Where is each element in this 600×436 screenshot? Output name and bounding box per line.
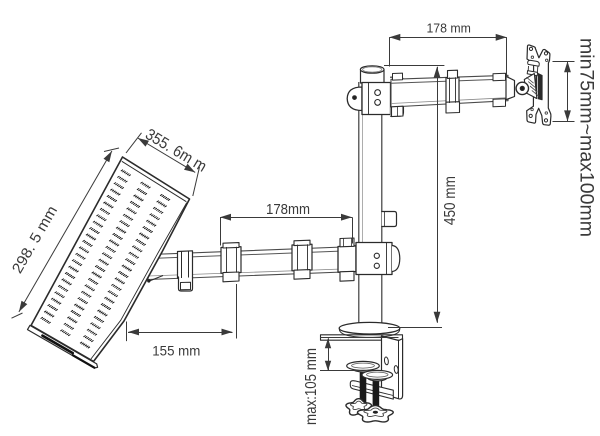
- svg-text:155 mm: 155 mm: [152, 343, 200, 359]
- svg-text:178mm: 178mm: [266, 201, 310, 218]
- svg-text:178 mm: 178 mm: [426, 21, 471, 36]
- svg-text:min75mm~max100mm: min75mm~max100mm: [576, 38, 597, 237]
- svg-text:450 mm: 450 mm: [442, 176, 459, 225]
- svg-text:max:105 mm: max:105 mm: [303, 348, 320, 425]
